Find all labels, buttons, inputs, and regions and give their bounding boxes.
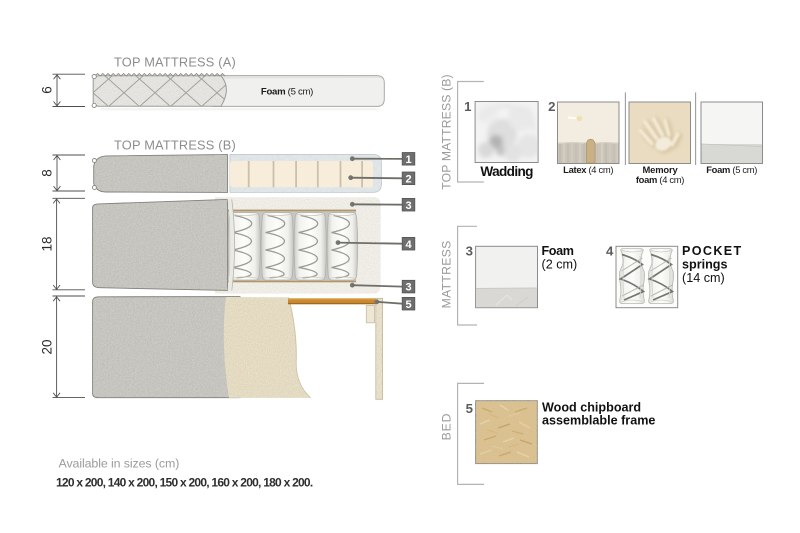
svg-text:Wood chipboard: Wood chipboard	[542, 400, 641, 414]
svg-text:1: 1	[464, 99, 471, 114]
svg-text:4: 4	[406, 239, 413, 251]
svg-text:4: 4	[606, 244, 614, 259]
svg-text:MATTRESS: MATTRESS	[440, 240, 454, 308]
svg-text:BED: BED	[440, 413, 454, 441]
svg-text:Foam (5 cm): Foam (5 cm)	[261, 87, 313, 98]
svg-text:5: 5	[466, 401, 473, 416]
svg-text:18: 18	[40, 236, 55, 251]
svg-text:TOP MATTRESS (B): TOP MATTRESS (B)	[440, 74, 454, 189]
svg-text:(2 cm): (2 cm)	[542, 258, 578, 272]
svg-text:6: 6	[40, 86, 55, 94]
svg-text:5: 5	[406, 299, 412, 311]
svg-text:1: 1	[406, 154, 412, 166]
svg-text:Foam: Foam	[542, 244, 574, 258]
svg-text:2: 2	[406, 173, 412, 185]
svg-text:8: 8	[40, 169, 55, 177]
svg-text:Available in sizes (cm): Available in sizes (cm)	[59, 457, 180, 471]
svg-text:3: 3	[406, 200, 412, 212]
svg-text:TOP MATTRESS (B): TOP MATTRESS (B)	[114, 138, 236, 153]
svg-text:POCKET: POCKET	[682, 244, 743, 258]
svg-text:20: 20	[40, 339, 55, 354]
svg-text:120 x 200, 140 x 200, 150 x 20: 120 x 200, 140 x 200, 150 x 200, 160 x 2…	[56, 476, 313, 490]
svg-text:assemblable frame: assemblable frame	[542, 414, 655, 428]
svg-text:2: 2	[548, 99, 555, 114]
svg-text:springs: springs	[682, 258, 728, 272]
svg-text:foam (4 cm): foam (4 cm)	[636, 174, 684, 185]
svg-text:Wadding: Wadding	[480, 164, 533, 179]
svg-text:TOP MATTRESS (A): TOP MATTRESS (A)	[114, 55, 236, 70]
svg-text:3: 3	[466, 244, 473, 259]
svg-text:(14 cm): (14 cm)	[682, 271, 725, 285]
svg-text:Foam (5 cm): Foam (5 cm)	[706, 164, 757, 175]
svg-text:Latex (4 cm): Latex (4 cm)	[563, 164, 613, 175]
svg-text:3: 3	[406, 282, 412, 294]
